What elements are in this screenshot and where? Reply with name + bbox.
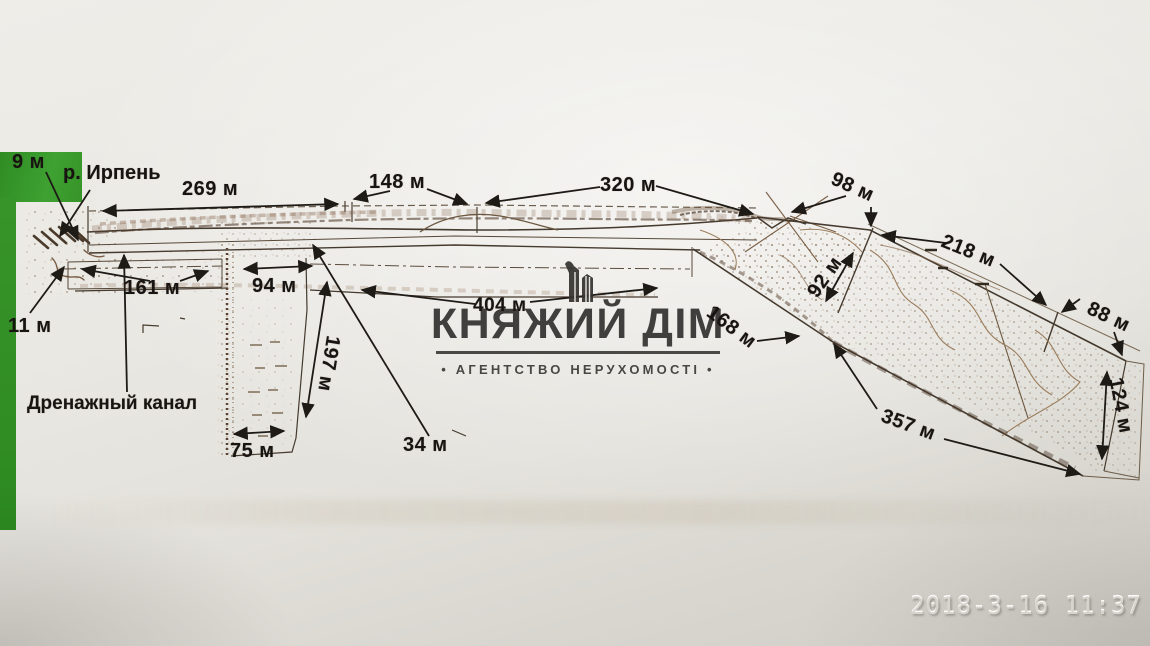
watermark: КНЯЖИЙ ДІМ • АГЕНТСТВО НЕРУХОМОСТІ • [418,258,738,377]
dim-label-9m: 9 м [12,151,45,174]
dim-label-320m: 320 м [600,174,656,197]
dim-label-11m: 11 м [8,315,52,338]
watermark-subtitle: • АГЕНТСТВО НЕРУХОМОСТІ • [418,362,738,377]
dim-label-75m: 75 м [230,440,275,463]
drainage-channel-label: Дренажный канал [27,393,197,415]
watermark-underline [436,351,720,354]
watermark-title: КНЯЖИЙ ДІМ [418,303,738,346]
dim-label-34m: 34 м [403,434,448,457]
dim-label-94m: 94 м [252,275,297,298]
dim-label-269m: 269 м [182,178,238,201]
dim-label-161m: 161 м [124,277,180,300]
river-label: р. Ирпень [63,162,161,185]
dim-label-148m: 148 м [369,171,425,194]
drainage-strip [218,222,315,458]
photo-of-site-plan: 9 м р. Ирпень 269 м 148 м 320 м 98 м 218… [0,0,1150,646]
dim-label-404m: 404 м [473,295,527,317]
building-icon [555,258,601,302]
camera-timestamp: 2018-3-16 11:37 [910,592,1142,620]
